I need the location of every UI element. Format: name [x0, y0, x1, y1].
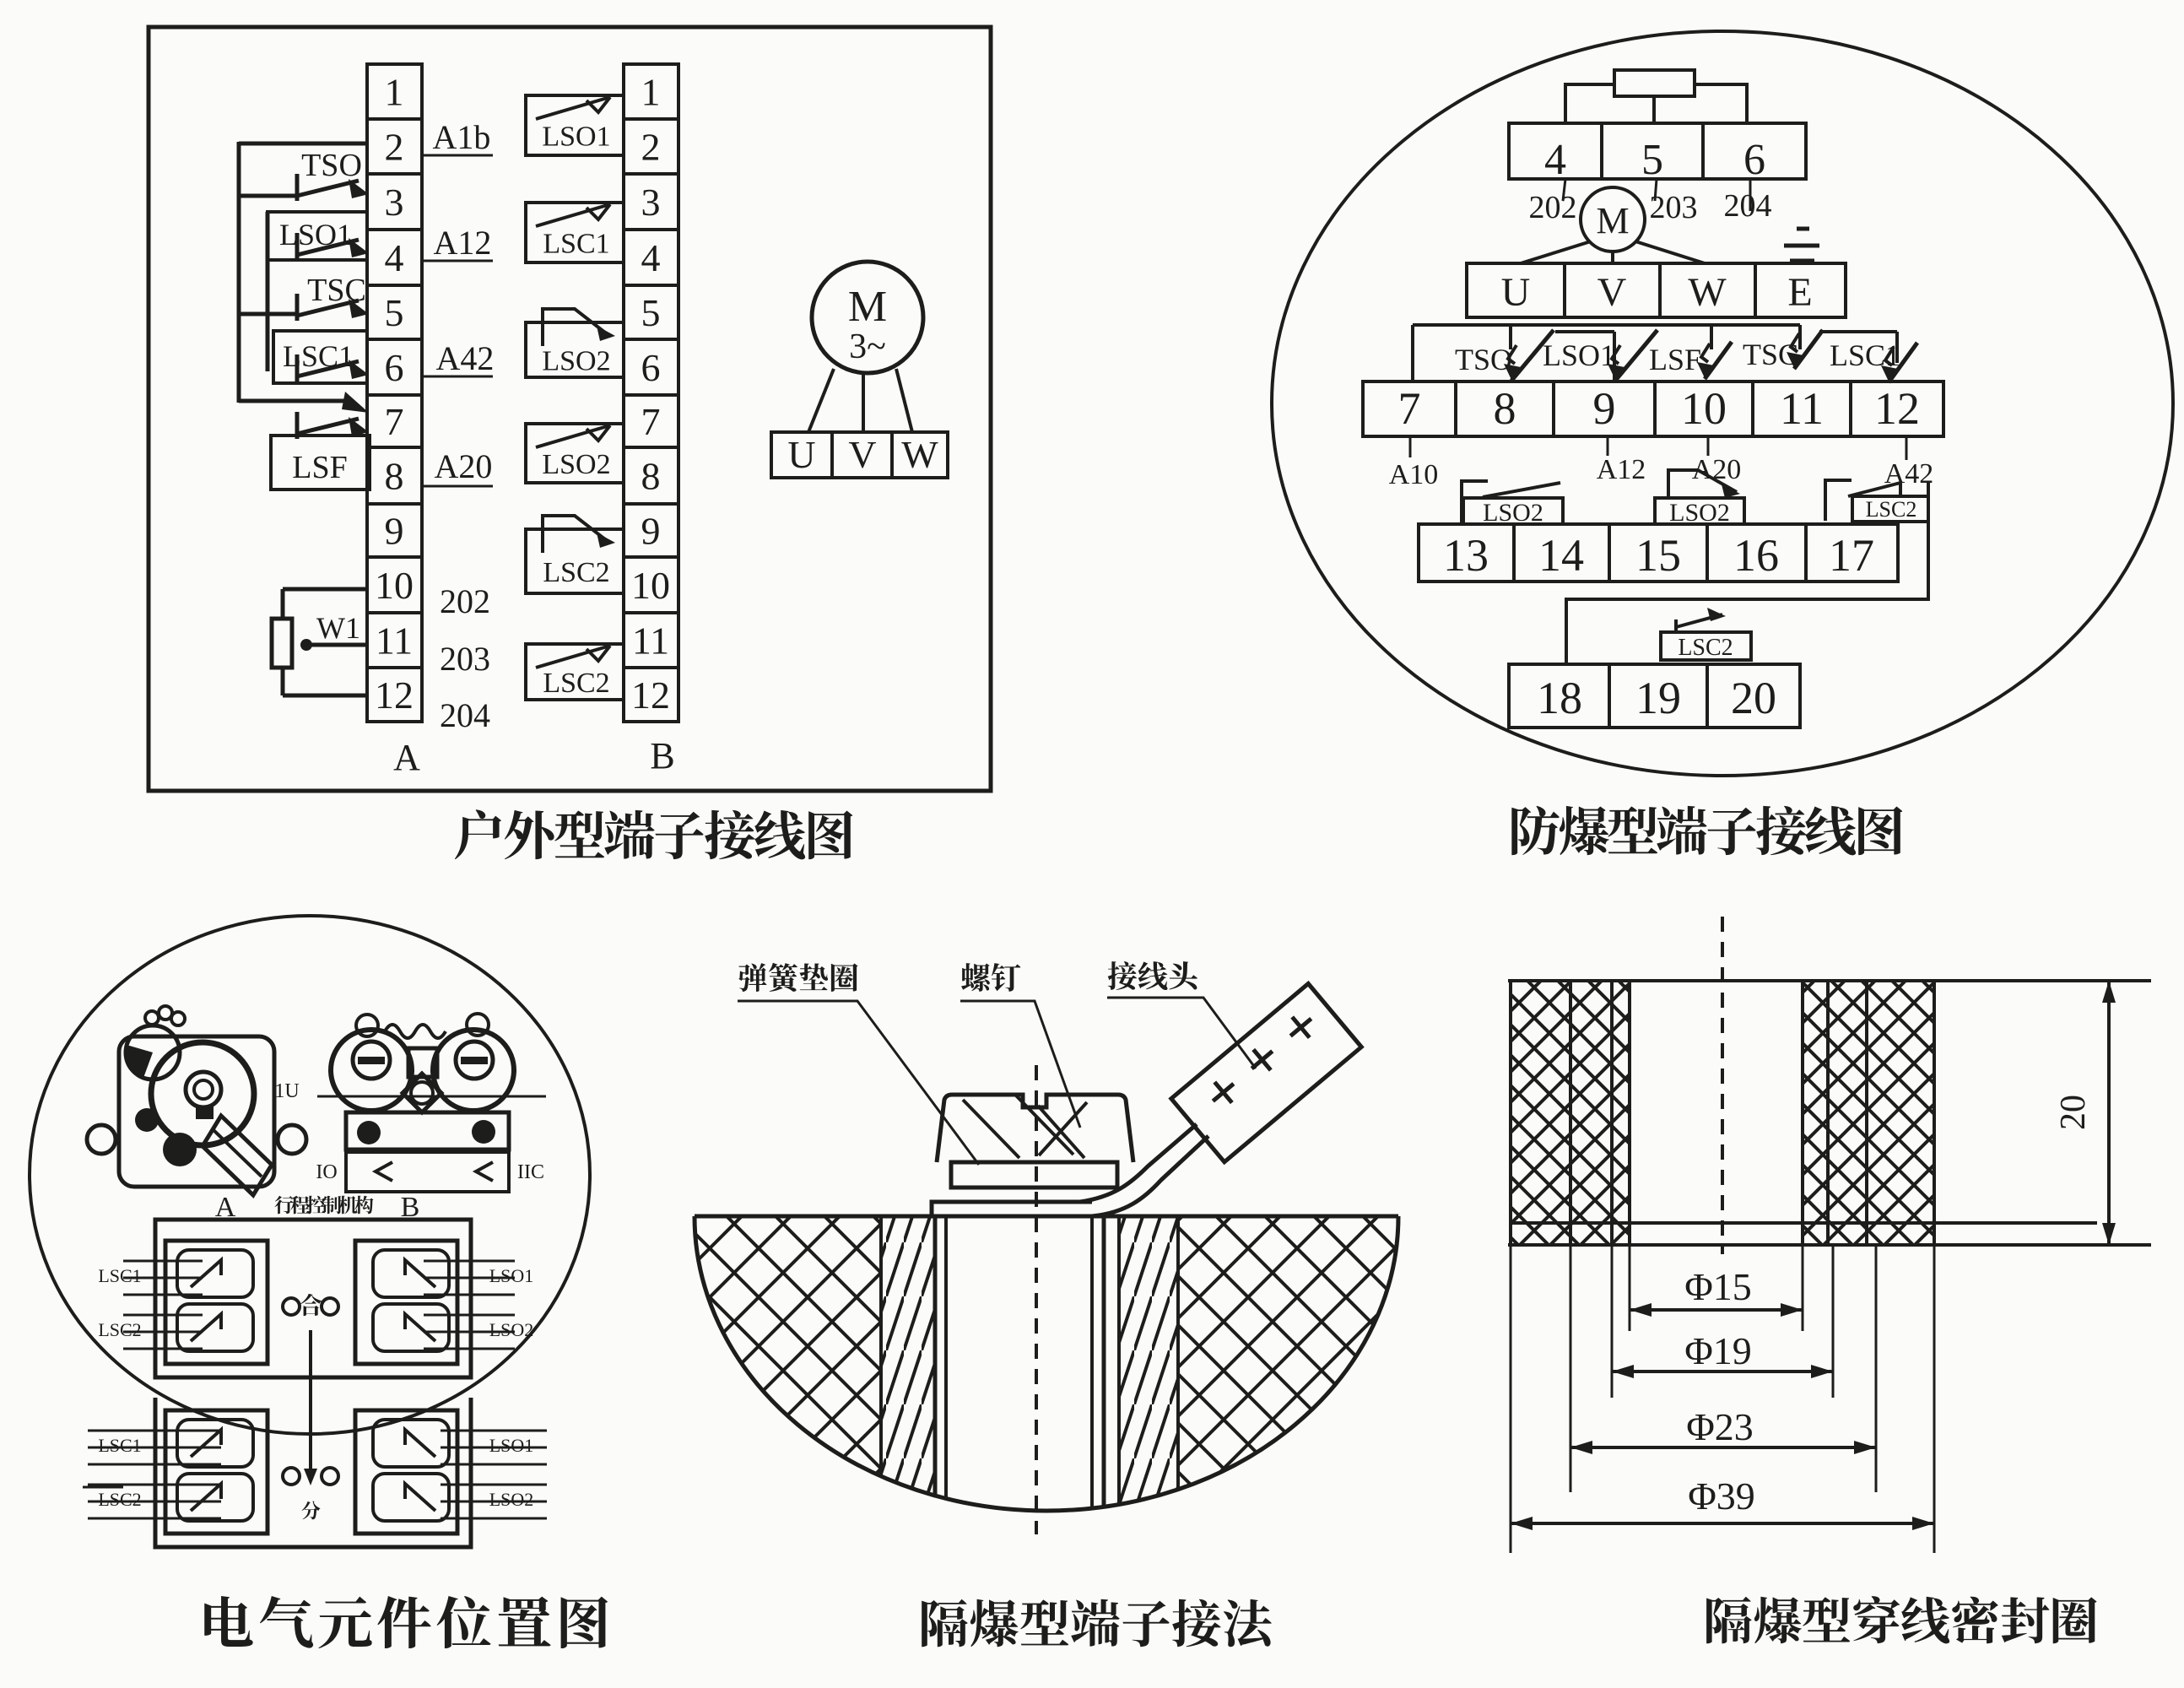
svg-text:M: M — [848, 283, 887, 331]
svg-text:IIC: IIC — [517, 1161, 544, 1183]
svg-text:15: 15 — [1635, 530, 1681, 581]
svg-text:6: 6 — [641, 346, 661, 389]
svg-text:LSF: LSF — [292, 450, 347, 485]
svg-text:3: 3 — [385, 181, 404, 224]
svg-text:E: E — [1787, 270, 1812, 315]
svg-text:11: 11 — [632, 619, 669, 663]
svg-text:5: 5 — [1641, 136, 1663, 184]
svg-text:LSO2: LSO2 — [489, 1489, 534, 1510]
svg-text:8: 8 — [641, 455, 661, 498]
svg-text:10: 10 — [631, 564, 670, 607]
svg-text:7: 7 — [385, 400, 404, 443]
svg-text:11: 11 — [1780, 383, 1824, 434]
svg-text:19: 19 — [1635, 673, 1681, 723]
svg-text:20: 20 — [1731, 673, 1776, 723]
svg-text:A20: A20 — [435, 447, 493, 485]
svg-text:A10: A10 — [1389, 459, 1439, 490]
svg-text:TSO: TSO — [301, 148, 362, 183]
svg-text:A12: A12 — [434, 224, 492, 262]
svg-text:9: 9 — [385, 510, 404, 553]
svg-text:11: 11 — [376, 619, 413, 663]
svg-text:LSO2: LSO2 — [489, 1319, 534, 1340]
svg-text:LSO1: LSO1 — [542, 122, 610, 153]
svg-text:TSC: TSC — [1743, 338, 1798, 371]
svg-text:204: 204 — [1724, 188, 1772, 224]
svg-text:Φ15: Φ15 — [1684, 1265, 1752, 1308]
svg-text:Φ19: Φ19 — [1684, 1329, 1752, 1372]
svg-text:4: 4 — [385, 236, 404, 279]
svg-text:A12: A12 — [1597, 454, 1646, 485]
svg-text:LSC1: LSC1 — [1830, 338, 1900, 372]
svg-text:LSF: LSF — [1649, 343, 1701, 376]
svg-text:13: 13 — [1443, 530, 1489, 581]
svg-text:204: 204 — [440, 696, 490, 734]
svg-text:2: 2 — [641, 126, 661, 169]
svg-text:14: 14 — [1538, 530, 1584, 581]
svg-text:W: W — [1688, 270, 1727, 315]
svg-text:203: 203 — [440, 640, 490, 678]
svg-text:1: 1 — [641, 71, 661, 114]
svg-text:12: 12 — [631, 674, 670, 717]
svg-text:1: 1 — [385, 71, 404, 114]
svg-text:LSC2: LSC2 — [1866, 497, 1917, 522]
svg-text:10: 10 — [375, 564, 414, 607]
svg-text:12: 12 — [1874, 383, 1920, 434]
svg-text:LSC1: LSC1 — [283, 339, 354, 373]
svg-text:W: W — [901, 433, 938, 476]
svg-text:LSC2: LSC2 — [98, 1319, 141, 1340]
svg-text:203: 203 — [1650, 190, 1698, 225]
svg-text:3: 3 — [641, 181, 661, 224]
svg-text:W1: W1 — [316, 611, 360, 645]
svg-text:5: 5 — [641, 291, 661, 334]
svg-text:LSO1: LSO1 — [1543, 338, 1615, 372]
svg-text:3~: 3~ — [849, 327, 886, 366]
svg-text:7: 7 — [1398, 383, 1421, 434]
svg-text:U: U — [787, 433, 815, 476]
svg-text:4: 4 — [1544, 136, 1566, 184]
svg-text:20: 20 — [2054, 1095, 2093, 1130]
svg-text:202: 202 — [1529, 190, 1577, 225]
svg-text:LSO2: LSO2 — [542, 449, 610, 480]
svg-text:17: 17 — [1829, 530, 1874, 581]
svg-text:IO: IO — [316, 1161, 337, 1183]
svg-text:Φ23: Φ23 — [1686, 1405, 1754, 1448]
svg-text:LSO1: LSO1 — [489, 1435, 534, 1456]
svg-text:B: B — [650, 735, 674, 776]
svg-text:LSC1: LSC1 — [543, 229, 609, 260]
svg-text:9: 9 — [641, 510, 661, 553]
svg-text:6: 6 — [385, 346, 404, 389]
svg-text:12: 12 — [375, 674, 414, 717]
svg-text:LSC2: LSC2 — [1678, 635, 1733, 661]
svg-text:LSC2: LSC2 — [543, 557, 609, 588]
svg-text:A1b: A1b — [433, 118, 491, 156]
svg-text:4: 4 — [641, 236, 661, 279]
svg-text:M: M — [1596, 200, 1629, 241]
svg-text:LSC1: LSC1 — [98, 1435, 141, 1456]
svg-text:8: 8 — [385, 455, 404, 498]
svg-text:9: 9 — [1593, 383, 1616, 434]
svg-text:2: 2 — [385, 126, 404, 169]
svg-text:8: 8 — [1494, 383, 1516, 434]
svg-text:V: V — [848, 433, 876, 476]
svg-text:202: 202 — [440, 582, 490, 620]
svg-text:LSO1: LSO1 — [279, 218, 352, 252]
svg-text:Φ39: Φ39 — [1688, 1474, 1755, 1518]
svg-text:18: 18 — [1537, 673, 1582, 723]
svg-text:U: U — [1501, 270, 1531, 315]
svg-text:V: V — [1597, 270, 1627, 315]
svg-text:TSO: TSO — [1455, 343, 1512, 376]
svg-text:5: 5 — [385, 291, 404, 334]
svg-text:7: 7 — [641, 400, 661, 443]
svg-text:LSO1: LSO1 — [489, 1265, 534, 1286]
svg-text:LSC2: LSC2 — [98, 1489, 141, 1510]
svg-text:6: 6 — [1743, 136, 1765, 184]
svg-text:LSC2: LSC2 — [543, 668, 609, 699]
svg-text:16: 16 — [1733, 530, 1779, 581]
svg-text:LSC1: LSC1 — [98, 1265, 141, 1286]
svg-text:1U: 1U — [274, 1080, 299, 1102]
svg-text:A42: A42 — [436, 339, 495, 377]
svg-text:A: A — [393, 737, 420, 778]
svg-text:LSO2: LSO2 — [542, 346, 610, 377]
svg-text:10: 10 — [1681, 383, 1727, 434]
